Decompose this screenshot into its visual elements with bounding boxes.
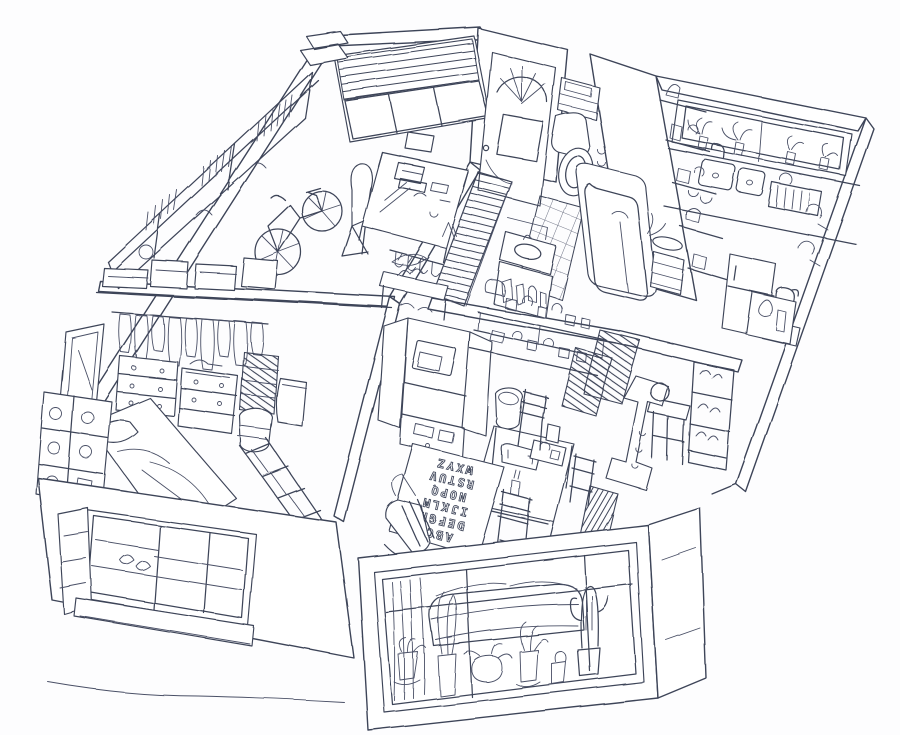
trash-bin	[496, 388, 523, 428]
shoe-rack	[688, 362, 734, 470]
radiator-panels	[562, 330, 640, 416]
wooden-stool	[648, 398, 690, 464]
ground-line	[48, 682, 344, 702]
exterior-bedroom-wall	[38, 478, 354, 702]
jug	[546, 424, 560, 443]
wall-cabinet	[746, 292, 796, 344]
bay-window	[374, 542, 644, 712]
apartment-isometric-drawing: ABC DEFGH IJKLM NOPQ RSTUV WXYZ	[0, 0, 900, 735]
apartment-sketch-canvas: ABC DEFGH IJKLM NOPQ RSTUV WXYZ	[0, 0, 900, 735]
waste-bin	[276, 378, 306, 426]
laundry-baskets	[650, 235, 684, 294]
folded-stacks	[240, 352, 278, 414]
hutch-cabinet	[378, 318, 492, 458]
open-casement	[58, 508, 92, 614]
dish-rack	[768, 174, 822, 216]
small-crate	[405, 132, 434, 152]
right-wall-end	[712, 484, 736, 494]
stacked-boxes	[300, 31, 348, 65]
blinds-window	[334, 36, 490, 142]
